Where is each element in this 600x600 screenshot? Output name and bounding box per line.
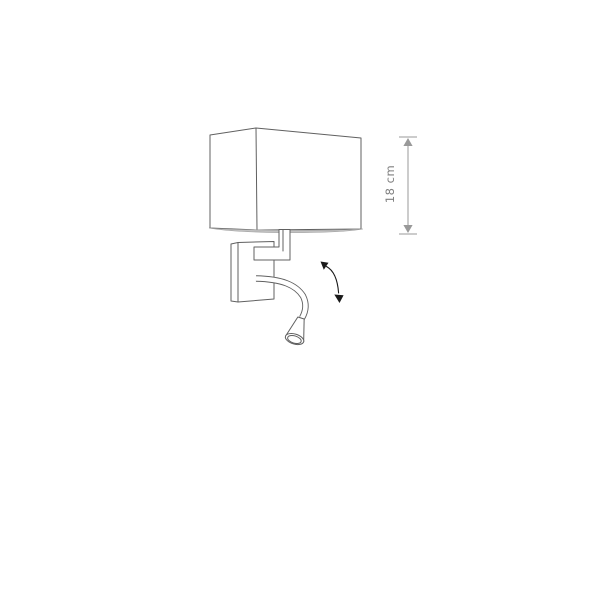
height-dimension-arrow: 18 cm xyxy=(383,137,417,234)
rotation-arrow-head-top xyxy=(321,262,329,270)
dimension-arrowhead-down xyxy=(403,225,412,233)
reading-light-head xyxy=(284,315,310,346)
lampshade xyxy=(209,128,363,233)
rotation-arrow-head-bottom xyxy=(334,295,343,304)
dimension-label: 18 cm xyxy=(383,165,397,203)
diagram-canvas: 18 cm xyxy=(0,0,600,600)
wall-lamp-diagram: 18 cm xyxy=(0,0,600,600)
rotation-arrow xyxy=(321,262,344,304)
rotation-arrow-arc xyxy=(327,267,339,294)
dimension-arrowhead-up xyxy=(403,138,412,146)
lampshade-outline xyxy=(210,128,361,230)
